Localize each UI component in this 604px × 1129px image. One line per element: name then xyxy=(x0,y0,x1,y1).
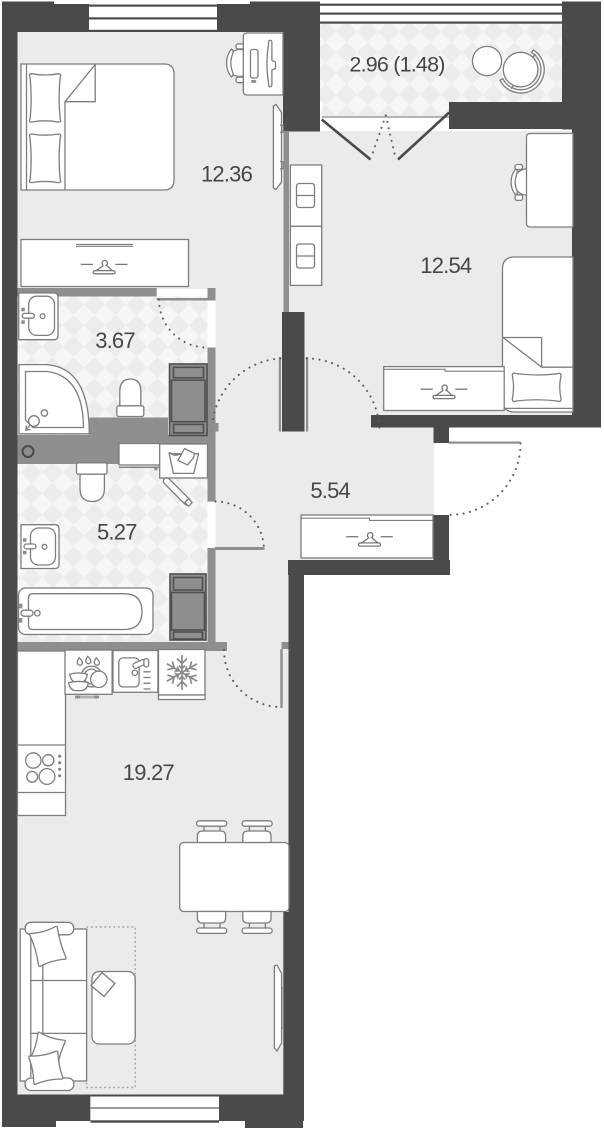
svg-text:12.54: 12.54 xyxy=(420,253,472,278)
svg-text:2.96 (1.48): 2.96 (1.48) xyxy=(349,52,444,76)
svg-text:12.36: 12.36 xyxy=(201,162,253,187)
svg-text:3.67: 3.67 xyxy=(95,328,135,353)
svg-text:5.27: 5.27 xyxy=(97,519,137,544)
svg-text:5.54: 5.54 xyxy=(310,478,350,503)
svg-text:19.27: 19.27 xyxy=(123,760,175,785)
